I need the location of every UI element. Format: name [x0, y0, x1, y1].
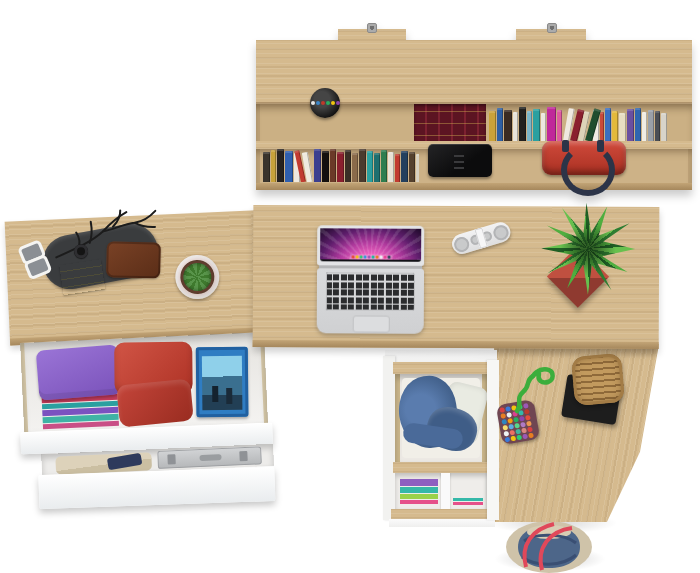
bead: [502, 425, 508, 431]
laptop-keyboard: [326, 272, 415, 310]
desk-front-edge: [253, 340, 659, 349]
denim-tote-bag: [503, 517, 595, 573]
pedestal-side-panel: [383, 356, 395, 520]
book: [655, 111, 660, 141]
spk-dot: [481, 230, 493, 242]
dock-icon: [367, 256, 370, 259]
laptop-lid: [317, 225, 424, 266]
bead: [513, 417, 519, 423]
book: [271, 150, 276, 182]
book: [533, 109, 540, 141]
keyhole-bracket: [547, 23, 557, 33]
book: [416, 154, 419, 182]
book: [388, 152, 394, 182]
list-item: [400, 479, 438, 486]
book: [661, 113, 667, 141]
pen: [331, 101, 335, 105]
laptop-trackpad: [353, 315, 390, 332]
book: [352, 153, 358, 182]
cactus-pot: [174, 254, 220, 300]
bead: [505, 437, 511, 443]
book: [627, 109, 634, 141]
spk-dot: [492, 223, 511, 242]
dock-icon: [359, 255, 362, 258]
wicker-basket: [571, 353, 625, 406]
pen: [321, 101, 325, 105]
sunglasses: [17, 239, 51, 278]
bead: [515, 429, 521, 435]
bluray-cover-art: [202, 356, 243, 410]
folded-clothes: [453, 498, 483, 505]
bluray-case: [196, 347, 249, 418]
bead: [508, 424, 514, 430]
dock-icon: [379, 256, 382, 259]
handbag-handle: [561, 144, 615, 196]
book: [263, 152, 270, 182]
antique-book-set: [414, 104, 486, 141]
book: [367, 151, 373, 182]
pen: [336, 101, 340, 105]
bead: [503, 431, 509, 437]
book: [359, 149, 366, 182]
drawer-divider: [441, 473, 450, 509]
sticky-notes: [59, 259, 105, 295]
handbag-strap-tab: [562, 140, 569, 152]
black-gadget: [428, 144, 492, 177]
book: [330, 149, 336, 182]
purple-folded-shirt: [36, 344, 122, 400]
book: [322, 151, 329, 182]
leather-wallet: [106, 241, 161, 278]
bead: [507, 418, 513, 424]
dock-icon: [375, 256, 378, 259]
pedestal-rail: [393, 362, 493, 374]
list-item: [400, 500, 438, 504]
dock-icon: [371, 256, 374, 259]
clothes-stack: [36, 344, 122, 432]
pedestal-drawer-front: [487, 360, 499, 520]
laptop-wallpaper: [320, 228, 421, 260]
laptop-base: [317, 268, 424, 334]
book: [519, 107, 526, 141]
book: [409, 152, 415, 182]
bead: [510, 436, 516, 442]
dock-icon: [383, 256, 386, 259]
pen: [311, 101, 315, 105]
book: [648, 110, 654, 141]
drawer-pedestal: [383, 350, 499, 527]
green-cord: [509, 361, 559, 415]
list-item: [400, 487, 438, 493]
product-photo-desk-set: [0, 0, 700, 573]
book: [337, 152, 344, 182]
bead: [519, 416, 525, 422]
book: [527, 111, 532, 141]
pedestal-base: [389, 519, 495, 527]
left-desk-surface: [5, 210, 266, 345]
book: [395, 154, 400, 182]
pen: [316, 101, 320, 105]
book: [381, 150, 387, 182]
book: [497, 108, 503, 141]
book: [504, 110, 512, 141]
book: [277, 149, 284, 182]
book: [513, 112, 518, 141]
dock-icon: [351, 255, 354, 258]
keyhole-bracket: [367, 23, 377, 33]
red-handbag: [542, 136, 626, 182]
book: [489, 111, 496, 141]
bead: [516, 435, 522, 441]
dock-icon: [387, 256, 390, 259]
bead: [527, 427, 533, 433]
left-desk: [4, 202, 276, 523]
bead: [514, 423, 520, 429]
bead: [521, 428, 527, 434]
red-towels: [113, 340, 195, 427]
list-item: [400, 494, 438, 499]
book: [401, 151, 408, 182]
bead: [525, 415, 531, 421]
book: [314, 149, 321, 182]
book-row-lower: [263, 148, 419, 182]
folded-clothes: [400, 479, 438, 504]
laptop-dock: [349, 254, 392, 259]
bead: [501, 419, 507, 425]
book: [374, 153, 380, 182]
book: [642, 112, 647, 141]
pedestal-rail: [393, 462, 495, 473]
spk-dot: [469, 234, 481, 246]
list-item: [453, 498, 483, 501]
laptop: [317, 225, 425, 334]
bead: [500, 413, 506, 419]
bead: [522, 434, 528, 440]
main-desk-surface: [253, 205, 660, 349]
book: [285, 151, 293, 182]
bead: [528, 433, 534, 439]
bead: [526, 421, 532, 427]
pedestal-open-drawer: [395, 374, 487, 462]
bead: [499, 407, 505, 413]
book: [635, 108, 641, 141]
pedestal-rail: [391, 509, 495, 519]
wall-shelf: [256, 40, 692, 190]
spk-dot: [452, 235, 471, 254]
pedestal-lower-drawer: [395, 473, 487, 509]
pen-cup: [310, 88, 340, 118]
list-item: [453, 502, 483, 505]
shelf-bottom-edge: [256, 183, 692, 190]
bead: [520, 422, 526, 428]
drawer-front: [38, 467, 275, 509]
portable-speaker: [450, 220, 513, 256]
bead: [509, 430, 515, 436]
open-drawer-top: [20, 332, 268, 437]
pen: [326, 101, 330, 105]
aluminum-case: [157, 446, 262, 469]
dock-icon: [355, 255, 358, 258]
red-towel: [116, 379, 194, 428]
dock-icon: [363, 256, 366, 259]
book: [345, 150, 351, 182]
